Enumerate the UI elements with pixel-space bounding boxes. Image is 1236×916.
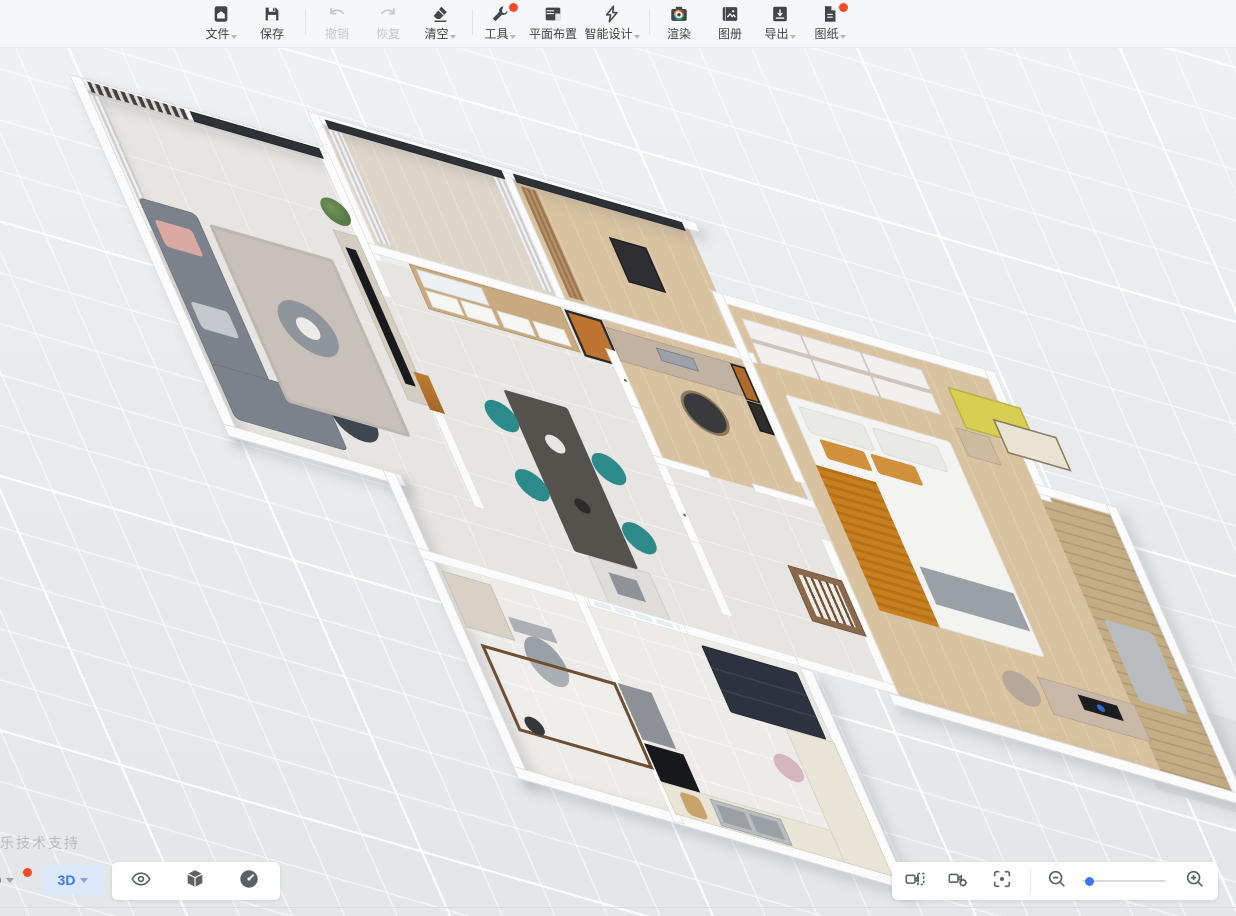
toolbar-button-label: 保存: [260, 26, 284, 42]
zoom-out-button[interactable]: [1036, 862, 1078, 900]
toolbar-button-label: 恢复: [376, 26, 400, 42]
floorplan-icon: [542, 4, 564, 26]
toolbar-button-label: 导出: [764, 26, 788, 42]
undo-icon: [326, 4, 348, 26]
toolbar-button-undo: 撤销: [313, 3, 361, 45]
mode-3d-label: 3D: [58, 872, 76, 888]
caret-down-icon: [840, 35, 846, 39]
cube-icon: [184, 868, 206, 895]
toolbar-button-smart-design[interactable]: 智能设计: [582, 3, 642, 45]
notification-dot: [839, 3, 848, 12]
toolbar-divider: [649, 9, 650, 35]
zoom-slider-track[interactable]: [1082, 880, 1166, 882]
wrench-icon: [489, 4, 511, 26]
toolbar-button-album[interactable]: 图册: [706, 3, 754, 45]
app-window: { "app": {"type": "3d-interior-design-ed…: [0, 0, 1236, 916]
watermark-text: 家乐技术支持: [0, 833, 80, 853]
caret-down-icon: [6, 878, 14, 883]
toolbar-button-tools[interactable]: 工具: [476, 3, 524, 45]
toolbar-button-export[interactable]: 导出: [756, 3, 804, 45]
drawing-sheet-icon: [819, 4, 841, 26]
render-camera-icon: [668, 4, 690, 26]
zoom-out-icon: [1046, 868, 1068, 895]
toolbar-divider: [472, 9, 473, 35]
focus-center-button[interactable]: [981, 862, 1023, 900]
notification-dot: [509, 3, 518, 12]
album-icon: [719, 4, 741, 26]
mode-2d-label: 2D: [0, 872, 1, 888]
notification-dot: [23, 868, 32, 877]
mode-3d-button[interactable]: 3D: [42, 865, 104, 895]
toolbar-button-save[interactable]: 保存: [248, 3, 296, 45]
camera-gear-icon: [947, 868, 969, 895]
toolbar-button-label: 渲染: [667, 26, 691, 42]
toolbar-button-redo: 恢复: [364, 3, 412, 45]
caret-down-icon: [231, 35, 237, 39]
zoom-slider-handle[interactable]: [1085, 877, 1094, 886]
view-tools-pill: [112, 862, 280, 900]
speedometer-icon: [238, 868, 260, 895]
zoom-in-button[interactable]: [1174, 862, 1216, 900]
export-icon: [769, 4, 791, 26]
eye-icon: [130, 868, 152, 895]
camera-view-button[interactable]: [894, 862, 936, 900]
caret-down-icon: [80, 878, 88, 883]
caret-down-icon: [450, 35, 456, 39]
eraser-icon: [429, 4, 451, 26]
model-view-button[interactable]: [174, 862, 216, 900]
camera-frame-icon: [904, 868, 926, 895]
toolbar-divider: [305, 9, 306, 35]
toolbar-button-label: 图纸: [814, 26, 838, 42]
save-icon: [261, 4, 283, 26]
toolbar-button-label: 撤销: [325, 26, 349, 42]
performance-button[interactable]: [228, 862, 270, 900]
visibility-button[interactable]: [120, 862, 162, 900]
toolbar-button-clear[interactable]: 清空: [416, 3, 464, 45]
pill-divider: [1030, 869, 1031, 893]
top-toolbar: 文件 保存 撤销 恢复 清空 工具 平面布置: [0, 0, 1236, 48]
toolbar-button-file[interactable]: 文件: [197, 3, 245, 45]
toolbar-button-label: 文件: [205, 26, 229, 42]
caret-down-icon: [510, 35, 516, 39]
table-decor: [542, 432, 569, 456]
table-decor: [572, 497, 593, 516]
canvas-bottom-line: [0, 907, 1236, 908]
caret-down-icon: [634, 35, 640, 39]
toolbar-button-floor-plan[interactable]: 平面布置: [523, 3, 583, 45]
toolbar-button-render[interactable]: 渲染: [655, 3, 703, 45]
zoom-in-icon: [1184, 868, 1206, 895]
toolbar-button-label: 清空: [424, 26, 448, 42]
toolbar-button-label: 平面布置: [529, 26, 577, 42]
toolbar-button-label: 工具: [484, 26, 508, 42]
toolbar-button-drawings[interactable]: 图纸: [806, 3, 854, 45]
toolbar-button-label: 智能设计: [584, 26, 632, 42]
island-sink: [608, 572, 646, 602]
viewport-3d-canvas[interactable]: 家乐技术支持 2D 3D: [0, 47, 1236, 916]
caret-down-icon: [790, 35, 796, 39]
camera-zoom-pill: [892, 862, 1218, 900]
monitor-glow: [1096, 703, 1107, 712]
redo-icon: [377, 4, 399, 26]
file-icon: [210, 4, 232, 26]
toolbar-button-label: 图册: [718, 26, 742, 42]
mode-2d-button[interactable]: 2D: [0, 865, 32, 895]
camera-settings-button[interactable]: [937, 862, 979, 900]
lightning-icon: [601, 4, 623, 26]
focus-icon: [991, 868, 1013, 895]
